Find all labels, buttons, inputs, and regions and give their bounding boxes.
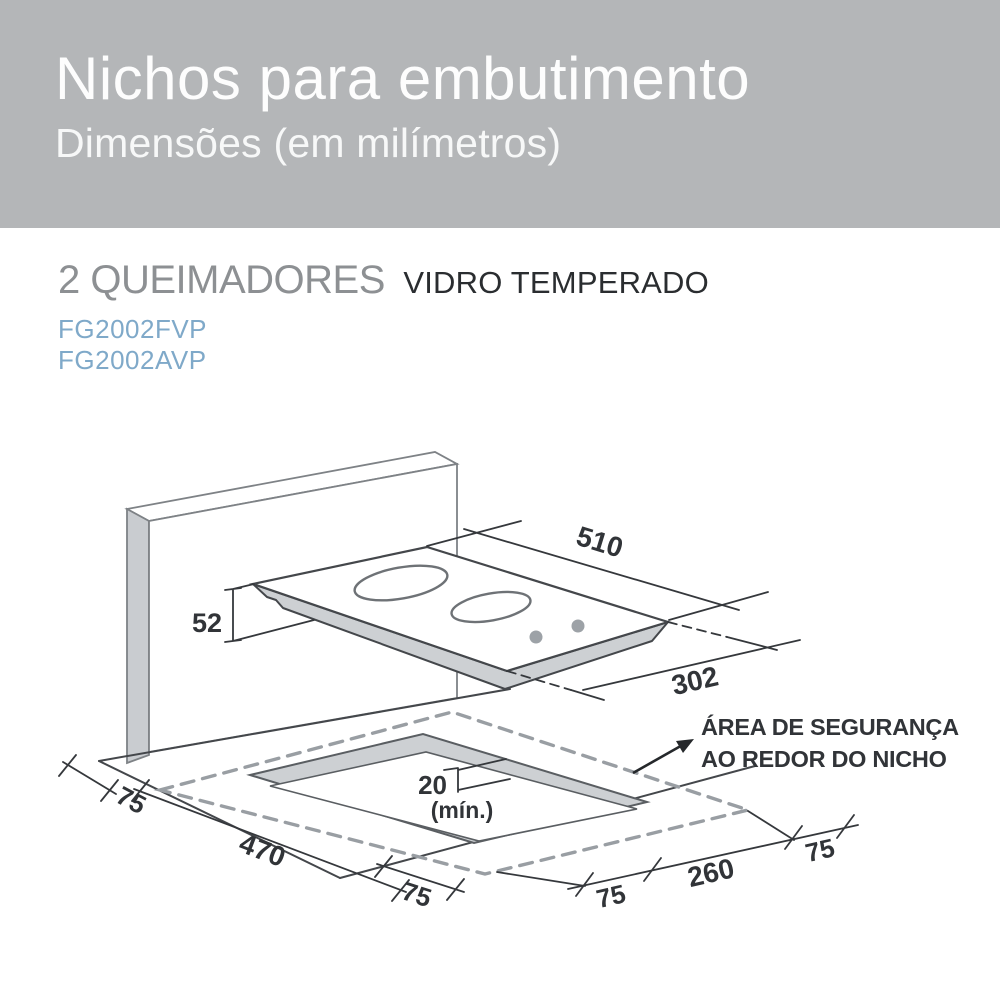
installation-diagram: 52 510 302 20 (mín.) 75 470 75 75 — [0, 0, 1000, 1000]
dim-label-75-right-near: 75 — [594, 878, 629, 914]
safety-note-line2: AO REDOR DO NICHO — [701, 746, 947, 772]
dim-label-510: 510 — [573, 520, 627, 563]
dim-label-302: 302 — [669, 660, 721, 701]
dim-label-52: 52 — [192, 608, 222, 638]
dim-label-260: 260 — [685, 852, 737, 893]
safety-arrow-line — [633, 743, 686, 773]
dim-label-min-note: (mín.) — [431, 797, 494, 823]
dim-label-75-right-far: 75 — [803, 832, 838, 868]
safety-note: ÁREA DE SEGURANÇA AO REDOR DO NICHO — [633, 713, 959, 773]
wall-left-edge — [127, 509, 149, 763]
dim-label-470: 470 — [235, 827, 290, 873]
control-knob — [572, 620, 585, 633]
safety-note-line1: ÁREA DE SEGURANÇA — [701, 713, 959, 740]
control-knob — [530, 631, 543, 644]
dim-label-20: 20 — [418, 770, 447, 800]
